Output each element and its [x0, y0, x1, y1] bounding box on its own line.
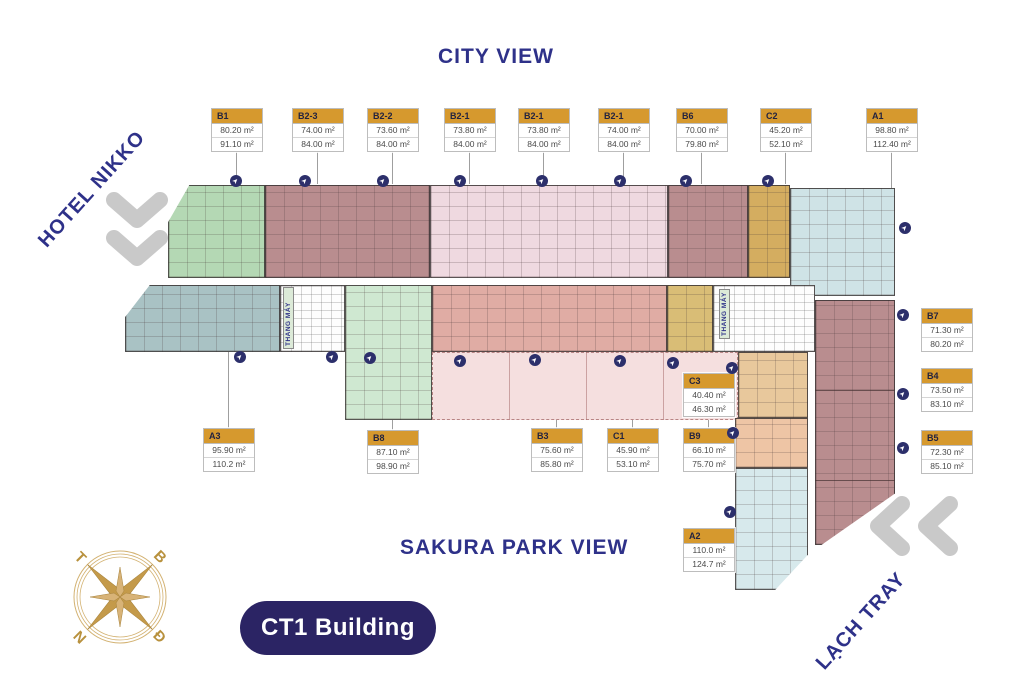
leader-line — [228, 352, 229, 428]
unit-label-a2-18[interactable]: A2110.0 m²124.7 m² — [683, 528, 735, 572]
unit-code: B5 — [922, 431, 972, 446]
compass-rose-icon: B Đ N T — [28, 505, 212, 689]
unit-label-b1-0[interactable]: B180.20 m²91.10 m² — [211, 108, 263, 152]
view-direction-icon: ➤ — [726, 362, 738, 374]
unit-area-2: 84.00 m² — [293, 137, 343, 151]
unit-area-1: 75.60 m² — [532, 444, 582, 457]
unit-label-b2-1-4[interactable]: B2-173.80 m²84.00 m² — [518, 108, 570, 152]
unit-area-2: 52.10 m² — [761, 137, 811, 151]
leader-line — [701, 151, 702, 184]
unit-area-1: 87.10 m² — [368, 446, 418, 459]
unit-region-c3-upper[interactable] — [667, 285, 713, 352]
unit-region-a2[interactable] — [735, 468, 808, 590]
leader-line — [392, 420, 393, 430]
unit-area-2: 91.10 m² — [212, 137, 262, 151]
view-direction-icon: ➤ — [667, 357, 679, 369]
unit-code: B3 — [532, 429, 582, 444]
leader-line — [556, 420, 557, 428]
unit-area-1: 73.80 m² — [445, 124, 495, 137]
view-direction-icon: ➤ — [529, 354, 541, 366]
view-direction-icon: ➤ — [897, 309, 909, 321]
compass-south-label: N — [69, 628, 89, 648]
unit-label-b2-1-5[interactable]: B2-174.00 m²84.00 m² — [598, 108, 650, 152]
unit-label-b8-13[interactable]: B887.10 m²98.90 m² — [367, 430, 419, 474]
view-direction-icon: ➤ — [454, 175, 466, 187]
view-direction-icon: ➤ — [897, 442, 909, 454]
view-direction-icon: ➤ — [234, 351, 246, 363]
unit-area-2: 112.40 m² — [867, 137, 917, 151]
view-direction-icon: ➤ — [614, 355, 626, 367]
unit-area-2: 75.70 m² — [684, 457, 734, 471]
unit-area-1: 74.00 m² — [293, 124, 343, 137]
view-direction-icon: ➤ — [326, 351, 338, 363]
unit-label-c1-15[interactable]: C145.90 m²53.10 m² — [607, 428, 659, 472]
unit-code: C3 — [684, 374, 734, 389]
leader-line — [317, 151, 318, 184]
floorplan-page: CITY VIEW SAKURA PARK VIEW HOTEL NIKKO L… — [0, 0, 1023, 698]
unit-label-b3-14[interactable]: B375.60 m²85.80 m² — [531, 428, 583, 472]
unit-region-c3[interactable] — [738, 352, 808, 418]
unit-area-2: 84.00 m² — [519, 137, 569, 151]
view-direction-icon: ➤ — [724, 506, 736, 518]
unit-label-a1-8[interactable]: A198.80 m²112.40 m² — [866, 108, 918, 152]
compass-north-label: B — [150, 547, 170, 567]
sakura-park-view-title: SAKURA PARK VIEW — [400, 536, 628, 560]
unit-region-b2-1-group[interactable] — [430, 185, 668, 278]
leader-line — [469, 151, 470, 184]
unit-area-2: 84.00 m² — [368, 137, 418, 151]
unit-area-1: 40.40 m² — [684, 389, 734, 402]
leader-line — [632, 420, 633, 428]
leader-line — [891, 151, 892, 188]
unit-area-1: 66.10 m² — [684, 444, 734, 457]
unit-label-b2-2-2[interactable]: B2-273.60 m²84.00 m² — [367, 108, 419, 152]
unit-area-2: 84.00 m² — [599, 137, 649, 151]
unit-code: C1 — [608, 429, 658, 444]
unit-code: A3 — [204, 429, 254, 444]
unit-area-1: 80.20 m² — [212, 124, 262, 137]
unit-code: B2-1 — [599, 109, 649, 124]
view-direction-icon: ➤ — [299, 175, 311, 187]
view-direction-icon: ➤ — [230, 175, 242, 187]
unit-label-b2-1-3[interactable]: B2-173.80 m²84.00 m² — [444, 108, 496, 152]
view-direction-icon: ➤ — [897, 388, 909, 400]
view-direction-icon: ➤ — [364, 352, 376, 364]
leader-line — [785, 151, 786, 184]
view-direction-icon: ➤ — [899, 222, 911, 234]
unit-area-1: 98.80 m² — [867, 124, 917, 137]
unit-region-c2[interactable] — [748, 185, 790, 278]
view-direction-icon: ➤ — [762, 175, 774, 187]
leader-line — [708, 420, 709, 428]
unit-divider — [815, 390, 895, 391]
unit-area-1: 73.80 m² — [519, 124, 569, 137]
down-chevrons-icon — [104, 192, 174, 272]
unit-region-b9[interactable] — [735, 418, 808, 468]
unit-code: A1 — [867, 109, 917, 124]
unit-label-b4-10[interactable]: B473.50 m²83.10 m² — [921, 368, 973, 412]
compass-rose: B Đ N T — [28, 505, 212, 689]
unit-area-1: 71.30 m² — [922, 324, 972, 337]
unit-region-b3-c1-b9-row[interactable] — [432, 285, 667, 352]
city-view-title: CITY VIEW — [438, 45, 554, 69]
unit-region-b6[interactable] — [668, 185, 748, 278]
elevator-label: THANG MÁY — [719, 289, 730, 339]
unit-area-1: 74.00 m² — [599, 124, 649, 137]
unit-code: B2-2 — [368, 109, 418, 124]
unit-area-2: 46.30 m² — [684, 402, 734, 416]
unit-label-c2-7[interactable]: C245.20 m²52.10 m² — [760, 108, 812, 152]
elevator-label: THANG MÁY — [283, 287, 294, 349]
unit-code: B8 — [368, 431, 418, 446]
unit-area-1: 73.60 m² — [368, 124, 418, 137]
unit-label-c3-17[interactable]: C340.40 m²46.30 m² — [683, 373, 735, 417]
view-direction-icon: ➤ — [614, 175, 626, 187]
unit-area-1: 72.30 m² — [922, 446, 972, 459]
unit-area-2: 85.10 m² — [922, 459, 972, 473]
unit-code: B2-3 — [293, 109, 343, 124]
building-badge[interactable]: CT1 Building — [240, 601, 436, 655]
view-direction-icon: ➤ — [680, 175, 692, 187]
unit-area-2: 53.10 m² — [608, 457, 658, 471]
unit-code: B2-1 — [445, 109, 495, 124]
unit-label-a3-12[interactable]: A395.90 m²110.2 m² — [203, 428, 255, 472]
unit-area-1: 110.0 m² — [684, 544, 734, 557]
unit-region-b1[interactable] — [168, 185, 265, 278]
unit-region-b2-3-b2-2[interactable] — [265, 185, 430, 278]
unit-label-b7-9[interactable]: B771.30 m²80.20 m² — [921, 308, 973, 352]
unit-region-a3[interactable] — [125, 285, 280, 352]
unit-area-1: 73.50 m² — [922, 384, 972, 397]
unit-area-2: 79.80 m² — [677, 137, 727, 151]
unit-region-b8[interactable] — [345, 285, 432, 420]
unit-code: C2 — [761, 109, 811, 124]
unit-region-a1[interactable] — [790, 188, 895, 296]
unit-code: B1 — [212, 109, 262, 124]
unit-code: B7 — [922, 309, 972, 324]
unit-code: A2 — [684, 529, 734, 544]
unit-area-2: 110.2 m² — [204, 457, 254, 471]
unit-area-2: 80.20 m² — [922, 337, 972, 351]
unit-area-1: 45.90 m² — [608, 444, 658, 457]
unit-label-b6-6[interactable]: B670.00 m²79.80 m² — [676, 108, 728, 152]
unit-divider — [815, 480, 895, 481]
compass-west-label: T — [71, 549, 90, 568]
unit-area-2: 98.90 m² — [368, 459, 418, 473]
unit-area-2: 85.80 m² — [532, 457, 582, 471]
unit-area-1: 95.90 m² — [204, 444, 254, 457]
unit-area-1: 70.00 m² — [677, 124, 727, 137]
lach-tray-label: LẠCH TRAY — [812, 568, 911, 675]
view-direction-icon: ➤ — [536, 175, 548, 187]
unit-label-b2-3-1[interactable]: B2-374.00 m²84.00 m² — [292, 108, 344, 152]
leader-line — [392, 151, 393, 184]
unit-area-1: 45.20 m² — [761, 124, 811, 137]
unit-code: B4 — [922, 369, 972, 384]
unit-area-2: 124.7 m² — [684, 557, 734, 571]
view-direction-icon: ➤ — [454, 355, 466, 367]
view-direction-icon: ➤ — [727, 427, 739, 439]
unit-area-2: 84.00 m² — [445, 137, 495, 151]
unit-label-b5-11[interactable]: B572.30 m²85.10 m² — [921, 430, 973, 474]
unit-area-2: 83.10 m² — [922, 397, 972, 411]
view-direction-icon: ➤ — [377, 175, 389, 187]
unit-code: B6 — [677, 109, 727, 124]
unit-code: B2-1 — [519, 109, 569, 124]
